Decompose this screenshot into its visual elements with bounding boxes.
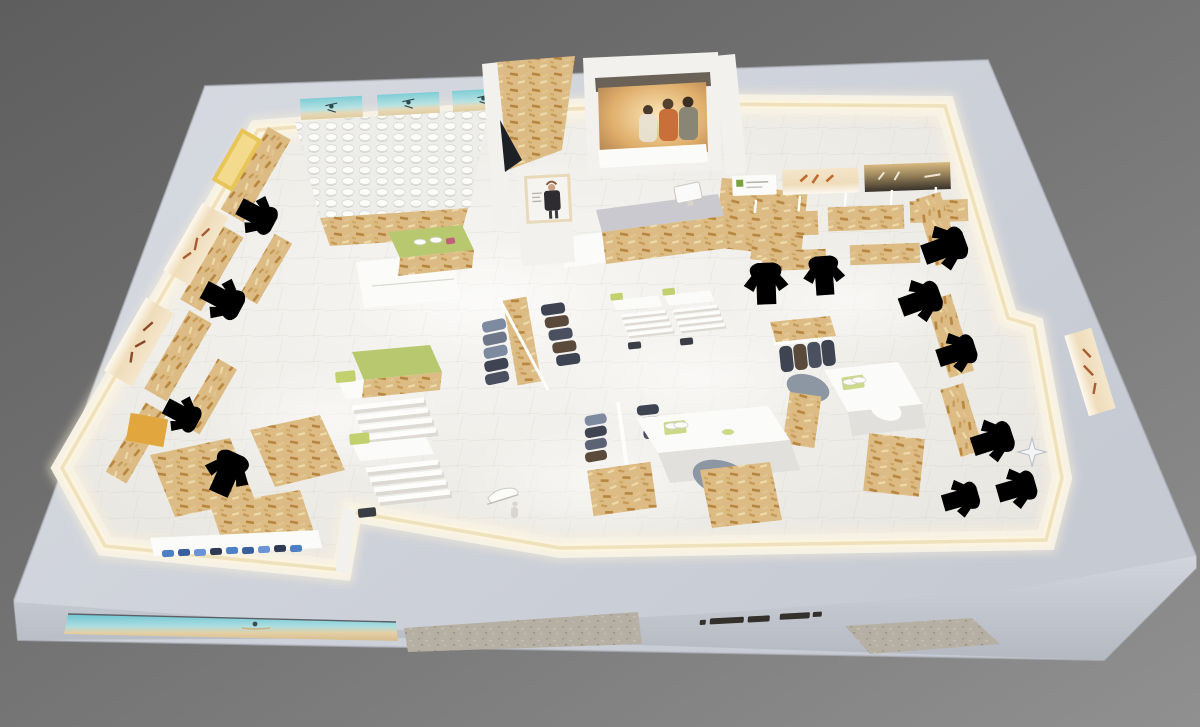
store-floorplan-render: 3D isometric render of a sportswear reta… (0, 0, 1200, 727)
poster-column (515, 164, 575, 266)
render-canvas: 3D isometric render of a sportswear reta… (0, 0, 1200, 727)
sunset-mural-room (583, 52, 722, 176)
